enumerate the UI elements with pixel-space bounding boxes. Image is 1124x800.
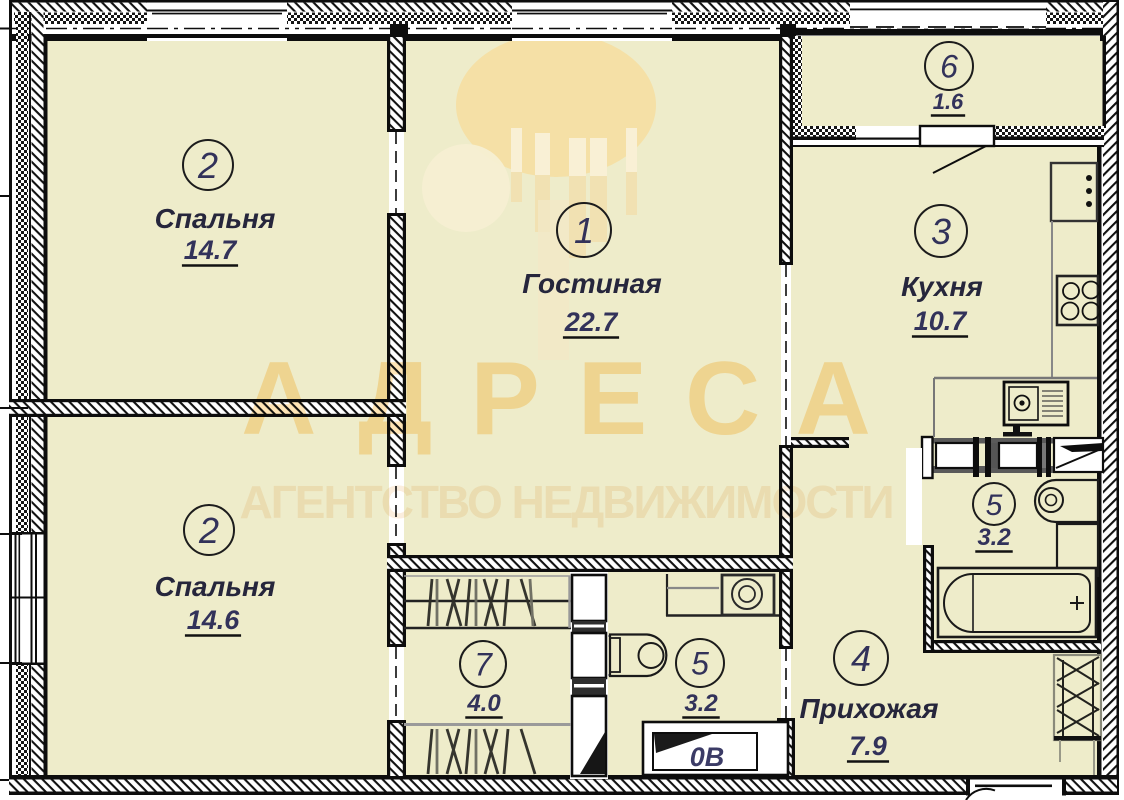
svg-text:7: 7 (474, 647, 493, 683)
svg-text:АДРЕСА: АДРЕСА (241, 341, 908, 457)
svg-text:22.7: 22.7 (564, 307, 620, 337)
svg-text:3: 3 (931, 211, 951, 252)
svg-text:14.6: 14.6 (187, 605, 241, 635)
svg-text:14.7: 14.7 (184, 235, 239, 265)
svg-text:4: 4 (851, 638, 871, 679)
svg-text:5: 5 (691, 646, 709, 682)
svg-text:5: 5 (986, 489, 1003, 522)
svg-text:10.7: 10.7 (914, 306, 969, 336)
svg-text:Спальня: Спальня (155, 571, 276, 602)
svg-text:4.0: 4.0 (466, 690, 501, 717)
svg-text:1: 1 (574, 210, 594, 251)
svg-text:2: 2 (197, 145, 218, 186)
svg-text:3.2: 3.2 (684, 690, 718, 717)
svg-text:АГЕНТСТВО НЕДВИЖИМОСТИ: АГЕНТСТВО НЕДВИЖИМОСТИ (239, 476, 892, 528)
svg-text:0В: 0В (690, 742, 725, 772)
svg-text:2: 2 (198, 510, 219, 551)
svg-text:3.2: 3.2 (977, 524, 1011, 551)
svg-text:1.6: 1.6 (933, 89, 964, 114)
svg-text:Прихожая: Прихожая (800, 693, 939, 724)
svg-text:7.9: 7.9 (849, 731, 887, 761)
svg-text:Спальня: Спальня (155, 203, 276, 234)
svg-text:6: 6 (940, 49, 958, 85)
svg-text:Гостиная: Гостиная (522, 268, 661, 299)
svg-text:Кухня: Кухня (901, 271, 983, 302)
